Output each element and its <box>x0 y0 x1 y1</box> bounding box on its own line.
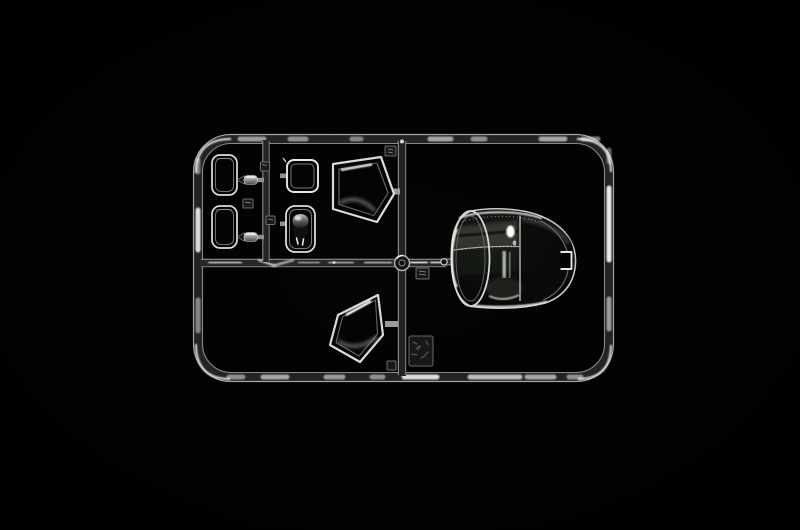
logo-plate: Molded manufacturer logo plate <box>409 336 433 366</box>
part-canopy: Large curved windshield / cab canopy <box>441 209 576 308</box>
junction-boss: Round boss at runner junction <box>395 256 410 271</box>
part-window-rect-top: Small rectangular window pane (upper lef… <box>212 155 237 195</box>
canopy-notch-icon: Locating notch on canopy edge <box>561 252 572 269</box>
part-window-rect-bottom: Small rectangular window pane (lower lef… <box>212 206 237 248</box>
sprue-photo: Sprue outer frame rail (rounded rectangl… <box>0 0 800 530</box>
runner-left-vertical: Left sub-runner <box>263 140 269 262</box>
